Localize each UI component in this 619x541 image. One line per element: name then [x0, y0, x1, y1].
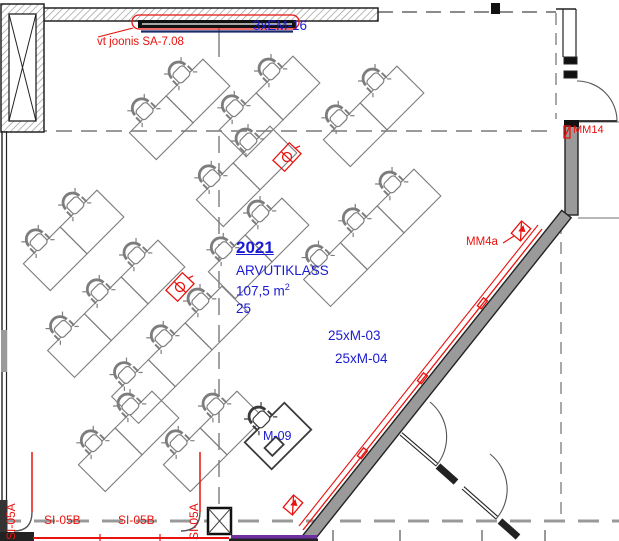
room-area: 107,5 m2	[236, 283, 290, 299]
outlet-label-mm14: MM14	[573, 125, 604, 137]
cable-tray-purple	[231, 535, 317, 539]
desk-chain	[207, 43, 320, 156]
cable-tray-diagonal	[299, 225, 542, 530]
desk-chain	[184, 113, 297, 226]
desk-chain	[35, 227, 185, 377]
floor-plan: vt joonis SA-7.08 3xEM-16 MM14 MM4a 2021…	[0, 0, 619, 541]
right-wall	[565, 123, 578, 215]
socket-label-m03: 25xM-03	[328, 329, 381, 343]
student-desks	[11, 43, 441, 491]
riser-label-si05a-2: SI-05A	[188, 503, 201, 540]
desk-chain	[117, 46, 230, 159]
media-outlet-icon	[283, 495, 302, 515]
desk-chain	[11, 177, 124, 290]
desk-chain	[99, 273, 249, 423]
outlet-label-mm4a: MM4a	[466, 236, 498, 248]
desk-chain	[66, 378, 179, 491]
tray-label-si05b-1: SI-05B	[44, 514, 81, 527]
desk-chain	[311, 53, 424, 166]
riser-lines	[32, 452, 200, 512]
diagonal-wall	[301, 210, 571, 541]
room-name: ARVUTIKLASS	[236, 264, 329, 278]
desk-chain	[291, 156, 441, 306]
desk-chain	[151, 378, 264, 491]
double-door	[400, 402, 518, 537]
floor-socket-icon	[273, 139, 304, 171]
column	[208, 508, 231, 534]
room-seat-count: 25	[236, 302, 251, 316]
tray-label-si05b-2: SI-05B	[118, 514, 155, 527]
floor-socket-icon	[166, 269, 197, 301]
socket-label-m04: 25xM-04	[335, 352, 388, 366]
top-right-corner	[491, 3, 577, 78]
circuit-label-em16: 3xEM-16	[253, 19, 307, 33]
room-number: 2021	[236, 239, 274, 257]
door-top-right	[577, 81, 617, 121]
left-wall	[0, 131, 8, 541]
riser-label-si05a-1: SI-05A	[5, 503, 18, 540]
label-m09: M-09	[263, 430, 291, 443]
shaft	[1, 4, 44, 132]
reference-note: vt joonis SA-7.08	[97, 36, 184, 48]
